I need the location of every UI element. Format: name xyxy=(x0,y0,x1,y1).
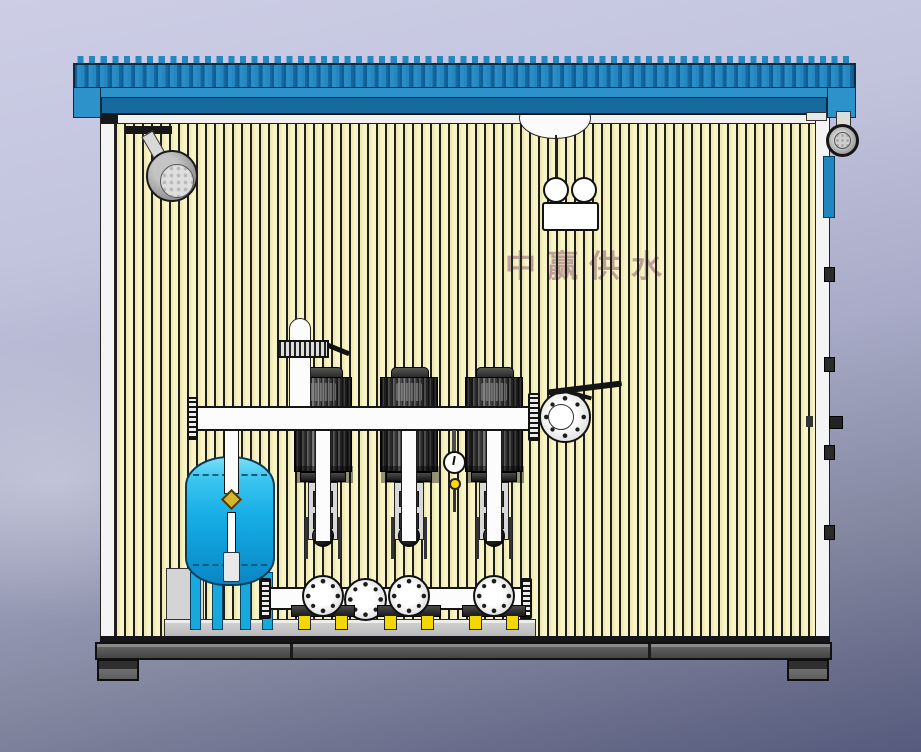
vibration-damper xyxy=(469,615,482,630)
gauge-drain-line xyxy=(453,490,456,512)
door-hinge xyxy=(824,525,835,540)
eave-ledge-right xyxy=(806,112,827,121)
lamp-globe xyxy=(543,177,569,203)
door-hinge xyxy=(824,445,835,460)
left-wall-trim xyxy=(100,114,115,645)
roof-eave-band xyxy=(101,97,827,114)
pump-discharge-pipe xyxy=(486,430,502,542)
door-hinge xyxy=(824,267,835,282)
vibration-damper xyxy=(335,615,348,630)
tank-feed-pipe xyxy=(224,428,239,494)
door-handle-inner xyxy=(806,416,813,427)
spotlight-lamp-face xyxy=(160,164,194,198)
lamp-housing-box xyxy=(542,202,599,231)
air-release-riser xyxy=(289,318,311,410)
pump-inlet-flange xyxy=(302,575,344,617)
valve-port xyxy=(548,404,574,430)
frame-joint xyxy=(648,644,651,658)
discharge-manifold xyxy=(195,406,540,431)
motor-logo xyxy=(481,383,507,401)
riser-clamp-valve xyxy=(277,340,329,358)
ceiling-strip xyxy=(115,115,815,124)
gauge-stem xyxy=(452,430,456,453)
coupling-guard xyxy=(509,517,512,559)
frame-joint xyxy=(290,644,293,658)
motor-logo xyxy=(396,383,422,401)
coupling-guard xyxy=(338,517,341,559)
pipe-union-fitting xyxy=(223,552,240,582)
coupling-guard xyxy=(424,517,427,559)
eave-step-left xyxy=(101,114,118,124)
coupling-guard xyxy=(305,517,308,559)
vibration-damper xyxy=(506,615,519,630)
pump-inlet-flange xyxy=(473,575,515,617)
coupling-guard xyxy=(476,517,479,559)
door-hinge xyxy=(824,357,835,372)
exterior-lamp-face xyxy=(834,132,851,149)
pump-discharge-pipe xyxy=(401,430,417,542)
lamp-rod xyxy=(555,135,557,181)
suction-end-flange xyxy=(260,578,271,619)
motor-logo xyxy=(310,383,336,401)
exterior-louver-panel xyxy=(823,156,835,218)
gauge-cock xyxy=(449,478,461,490)
vibration-damper xyxy=(384,615,397,630)
support-foot xyxy=(787,659,829,681)
door-handle xyxy=(829,416,843,429)
cad-render-viewport: 中赢供水 xyxy=(0,0,921,752)
vibration-damper xyxy=(298,615,311,630)
tank-leg xyxy=(190,572,201,630)
support-foot xyxy=(97,659,139,681)
coupling-guard xyxy=(391,517,394,559)
pump-inlet-flange xyxy=(388,575,430,617)
pump-discharge-pipe xyxy=(315,430,331,542)
corrugated-roof xyxy=(73,63,856,89)
discharge-end-flange xyxy=(187,397,198,440)
base-frame xyxy=(95,642,832,660)
lamp-globe xyxy=(571,177,597,203)
roof-left-cap xyxy=(73,87,101,118)
lamp-rod xyxy=(583,135,585,181)
vibration-damper xyxy=(421,615,434,630)
